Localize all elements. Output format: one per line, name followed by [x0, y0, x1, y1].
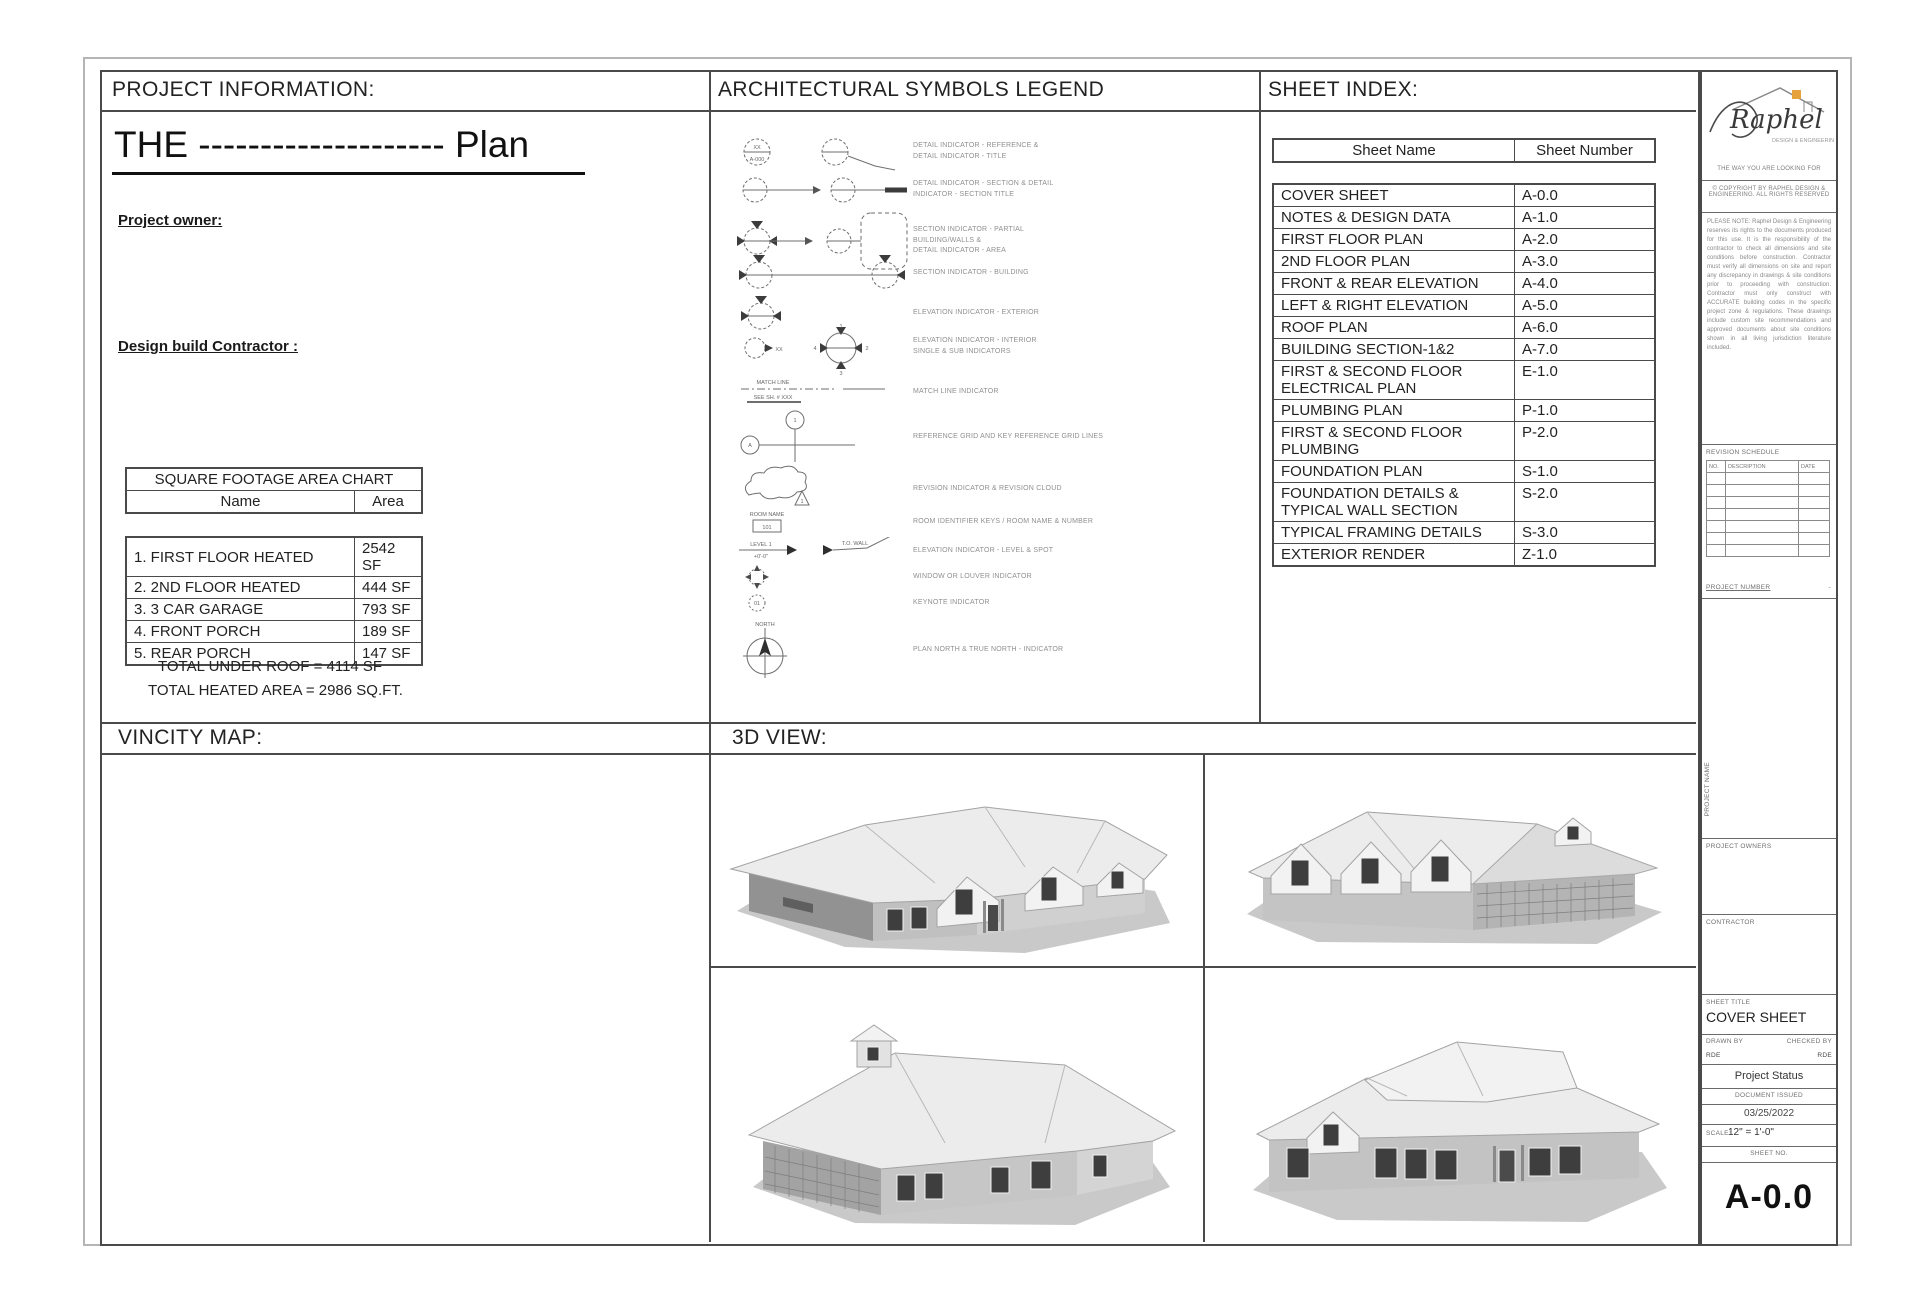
- legend-desc: DETAIL INDICATOR - SECTION & DETAIL INDI…: [913, 179, 1053, 201]
- total-under-roof: TOTAL UNDER ROOF = 4114 SF: [158, 658, 382, 675]
- table-row: 1. FIRST FLOOR HEATED2542 SF: [126, 537, 422, 577]
- symbols-legend-header: ARCHITECTURAL SYMBOLS LEGEND: [718, 78, 1104, 102]
- svg-text:+0'-0": +0'-0": [754, 554, 768, 560]
- scale-value: 12" = 1'-0": [1728, 1127, 1774, 1138]
- logo-subtitle: DESIGN & ENGINEERING: [1772, 138, 1834, 144]
- table-row: FIRST FLOOR PLANA-2.0: [1273, 229, 1655, 251]
- column-sheet-number: Sheet Number: [1515, 139, 1656, 162]
- square-footage-chart-header: SQUARE FOOTAGE AREA CHART Name Area: [125, 467, 423, 514]
- table-row: 3. 3 CAR GARAGE793 SF: [126, 599, 422, 621]
- legend-desc: ROOM IDENTIFIER KEYS / ROOM NAME & NUMBE…: [913, 517, 1093, 528]
- legend-desc: ELEVATION INDICATOR - EXTERIOR: [913, 308, 1039, 319]
- sheet-no-label: SHEET NO.: [1702, 1150, 1836, 1157]
- document-issued-date: 03/25/2022: [1702, 1108, 1836, 1119]
- legend-row: NORTH PLAN NORTH & TRUE NORTH - INDICATO…: [735, 618, 1063, 682]
- sheet-index-header: SHEET INDEX:: [1268, 78, 1418, 102]
- revision-row: [1707, 545, 1830, 557]
- project-information-header: PROJECT INFORMATION:: [112, 78, 375, 102]
- svg-text:1: 1: [800, 499, 803, 505]
- title-block-notes: PLEASE NOTE: Raphel Design & Engineering…: [1707, 218, 1831, 440]
- band-line-top: [100, 722, 1696, 724]
- svg-text:1: 1: [793, 418, 796, 424]
- table-row: LEFT & RIGHT ELEVATIONA-5.0: [1273, 295, 1655, 317]
- document-issued-label: DOCUMENT ISSUED: [1702, 1092, 1836, 1099]
- table-row: BUILDING SECTION-1&2A-7.0: [1273, 339, 1655, 361]
- plan-title: THE -------------------- Plan: [112, 124, 585, 175]
- legend-desc: WINDOW OR LOUVER INDICATOR: [913, 572, 1032, 583]
- square-footage-chart-rows: 1. FIRST FLOOR HEATED2542 SF 2. 2ND FLOO…: [125, 536, 423, 666]
- spot-level-symbol: LEVEL 1 +0'-0" T.O. WALL: [735, 537, 913, 565]
- legend-row: MATCH LINE SEE SH. # XXX MATCH LINE INDI…: [735, 375, 999, 409]
- legend-desc: PLAN NORTH & TRUE NORTH - INDICATOR: [913, 645, 1063, 656]
- square-footage-chart-title: SQUARE FOOTAGE AREA CHART: [126, 468, 422, 491]
- logo-name: Raphel: [1729, 105, 1823, 135]
- legend-desc: ELEVATION INDICATOR - INTERIOR SINGLE & …: [913, 336, 1037, 358]
- quadrant-divider-vertical: [1203, 753, 1205, 1242]
- sheet-title-value: COVER SHEET: [1706, 1009, 1806, 1025]
- svg-text:ROOM NAME: ROOM NAME: [750, 512, 785, 518]
- header-underline: [100, 110, 1696, 112]
- svg-text:101: 101: [762, 525, 771, 531]
- table-row: COVER SHEETA-0.0: [1273, 184, 1655, 207]
- house-render-top-left: [725, 763, 1191, 963]
- svg-text:A-000: A-000: [750, 157, 765, 163]
- svg-text:2: 2: [865, 346, 868, 352]
- house-render-top-right: [1237, 772, 1667, 962]
- table-row: PLUMBING PLANP-1.0: [1273, 400, 1655, 422]
- logo-sun-icon: [1792, 90, 1801, 99]
- revision-row: [1707, 509, 1830, 521]
- rev-col-date: DATE: [1799, 461, 1830, 473]
- revision-row: [1707, 485, 1830, 497]
- logo-tagline: THE WAY YOU ARE LOOKING FOR: [1702, 166, 1836, 172]
- divider-info-legend: [709, 70, 711, 1242]
- svg-text:01: 01: [754, 601, 760, 607]
- legend-row: XX 1342 ELEVATION INDICATOR - INTERIOR S…: [735, 318, 1037, 376]
- title-block: Raphel DESIGN & ENGINEERING THE WAY YOU …: [1700, 70, 1838, 1246]
- svg-text:NORTH: NORTH: [755, 622, 774, 628]
- project-number-value: -: [1829, 584, 1831, 591]
- quadrant-divider-horizontal: [709, 966, 1696, 968]
- project-owners-label: PROJECT OWNERS: [1706, 843, 1771, 850]
- table-row: NOTES & DESIGN DATAA-1.0: [1273, 207, 1655, 229]
- band-line-bottom: [100, 753, 1696, 755]
- match-line-indicator-symbol: MATCH LINE SEE SH. # XXX: [735, 375, 913, 409]
- revision-row: [1707, 533, 1830, 545]
- sheet-index-table: COVER SHEETA-0.0 NOTES & DESIGN DATAA-1.…: [1272, 183, 1656, 567]
- table-row: TYPICAL FRAMING DETAILSS-3.0: [1273, 522, 1655, 544]
- house-render-bottom-left: [745, 985, 1185, 1235]
- revision-row: [1707, 473, 1830, 485]
- room-tag-symbol: ROOM NAME 101: [735, 506, 913, 538]
- legend-desc: MATCH LINE INDICATOR: [913, 387, 999, 398]
- table-row: FOUNDATION PLANS-1.0: [1273, 461, 1655, 483]
- table-row: 2ND FLOOR PLANA-3.0: [1273, 251, 1655, 273]
- north-arrow-symbol: NORTH: [735, 618, 913, 682]
- copyright-text: © COPYRIGHT BY RAPHEL DESIGN & ENGINEERI…: [1706, 186, 1832, 198]
- legend-desc: REFERENCE GRID AND KEY REFERENCE GRID LI…: [913, 432, 1103, 443]
- table-row: FIRST & SECOND FLOOR ELECTRICAL PLANE-1.…: [1273, 361, 1655, 400]
- vicinity-map-header: VINCITY MAP:: [118, 726, 262, 750]
- window-indicator-symbol: [735, 563, 913, 591]
- rev-col-description: DESCRIPTION: [1726, 461, 1799, 473]
- legend-desc: ELEVATION INDICATOR - LEVEL & SPOT: [913, 546, 1053, 557]
- svg-text:MATCH LINE: MATCH LINE: [757, 380, 790, 386]
- legend-row: 01 KEYNOTE INDICATOR: [735, 590, 990, 616]
- column-name: Name: [126, 491, 355, 514]
- revision-row: [1707, 521, 1830, 533]
- total-heated-area: TOTAL HEATED AREA = 2986 SQ.FT.: [148, 682, 403, 699]
- table-row: 2. 2ND FLOOR HEATED444 SF: [126, 577, 422, 599]
- svg-text:4: 4: [813, 346, 816, 352]
- project-status: Project Status: [1702, 1070, 1836, 1082]
- revision-schedule-title: REVISION SCHEDULE: [1706, 449, 1779, 456]
- svg-text:XX: XX: [753, 145, 761, 151]
- column-area: Area: [355, 491, 423, 514]
- drawn-by-label: DRAWN BY: [1706, 1038, 1743, 1045]
- table-row: EXTERIOR RENDERZ-1.0: [1273, 544, 1655, 567]
- legend-desc: REVISION INDICATOR & REVISION CLOUD: [913, 484, 1062, 495]
- table-row: FOUNDATION DETAILS & TYPICAL WALL SECTIO…: [1273, 483, 1655, 522]
- legend-row: ROOM NAME 101 ROOM IDENTIFIER KEYS / ROO…: [735, 506, 1093, 538]
- legend-desc: SECTION INDICATOR - BUILDING: [913, 268, 1029, 279]
- project-owner-label: Project owner:: [118, 212, 222, 229]
- svg-text:A: A: [748, 443, 752, 449]
- svg-text:1: 1: [839, 324, 842, 330]
- company-logo: Raphel DESIGN & ENGINEERING: [1704, 80, 1834, 158]
- sheet-number: A-0.0: [1702, 1178, 1836, 1217]
- divider-legend-index: [1259, 70, 1261, 722]
- checked-by-value: RDE: [1817, 1052, 1832, 1059]
- svg-text:LEVEL 1: LEVEL 1: [750, 542, 772, 548]
- revision-row: [1707, 497, 1830, 509]
- legend-row: WINDOW OR LOUVER INDICATOR: [735, 563, 1032, 591]
- 3d-view-header: 3D VIEW:: [732, 726, 827, 750]
- design-build-contractor-label: Design build Contractor :: [118, 338, 298, 355]
- svg-text:XX: XX: [775, 347, 783, 353]
- drawn-by-value: RDE: [1706, 1052, 1721, 1059]
- revision-schedule-table: NO. DESCRIPTION DATE: [1706, 460, 1830, 557]
- contractor-label: CONTRACTOR: [1706, 919, 1755, 926]
- checked-by-label: CHECKED BY: [1787, 1038, 1832, 1045]
- legend-desc: KEYNOTE INDICATOR: [913, 598, 990, 609]
- project-number-label: PROJECT NUMBER: [1706, 584, 1770, 591]
- column-sheet-name: Sheet Name: [1273, 139, 1515, 162]
- rev-col-no: NO.: [1707, 461, 1726, 473]
- reference-grid-symbol: 1 A: [735, 408, 913, 466]
- sheet-title-label: SHEET TITLE: [1706, 999, 1750, 1006]
- legend-desc: DETAIL INDICATOR - REFERENCE & DETAIL IN…: [913, 141, 1039, 163]
- interior-elevation-indicator-symbol: XX 1342: [735, 318, 913, 376]
- house-render-bottom-right: [1247, 992, 1677, 1232]
- project-name-label: PROJECT NAME: [1704, 762, 1711, 816]
- table-row: FRONT & REAR ELEVATIONA-4.0: [1273, 273, 1655, 295]
- legend-row: 1 A REFERENCE GRID AND KEY REFERENCE GRI…: [735, 408, 1103, 466]
- keynote-indicator-symbol: 01: [735, 590, 913, 616]
- table-row: FIRST & SECOND FLOOR PLUMBINGP-2.0: [1273, 422, 1655, 461]
- legend-row: LEVEL 1 +0'-0" T.O. WALL ELEVATION INDIC…: [735, 537, 1053, 565]
- svg-text:SEE SH. # XXX: SEE SH. # XXX: [754, 395, 793, 401]
- table-row: ROOF PLANA-6.0: [1273, 317, 1655, 339]
- svg-text:T.O. WALL: T.O. WALL: [842, 541, 868, 547]
- sheet-index-column-headers: Sheet Name Sheet Number: [1272, 138, 1656, 163]
- cover-sheet-page: { "project_information": { "header": "PR…: [0, 0, 1920, 1296]
- table-row: 4. FRONT PORCH189 SF: [126, 621, 422, 643]
